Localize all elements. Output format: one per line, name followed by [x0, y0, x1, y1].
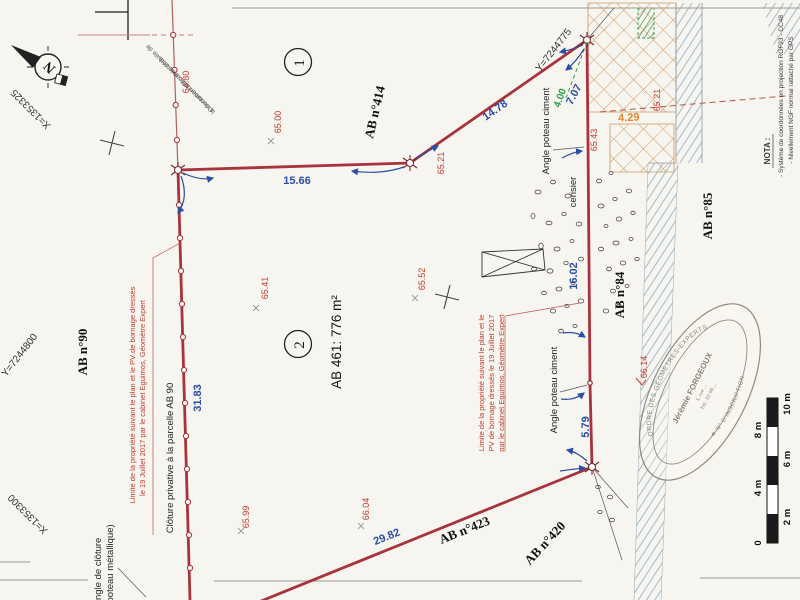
measurement-right-lower: 5.79	[580, 416, 592, 437]
green-hatch-box	[638, 8, 654, 38]
annotation-angle-cloture-1: Angle de clôture	[93, 538, 104, 600]
nota-title: NOTA :	[763, 138, 772, 165]
boundary-note-center-line1: Limite de la propriété suivant le plan e…	[477, 315, 486, 451]
boundary-note-left-line1: Limite de la propriété suivant le plan e…	[128, 286, 137, 503]
nota-line2: - Nivellement NGF normal rattaché par GP…	[788, 36, 795, 164]
elevation-label: 65.52	[417, 268, 427, 291]
boundary-note-left-line2: le 19 Juillet 2017 par le cabinet Eguimo…	[138, 299, 147, 496]
elevation-label: 65.00	[273, 111, 283, 134]
elevation-label: 65.21	[436, 152, 446, 175]
scale-label: 6 m	[782, 451, 793, 467]
boundary-note-center-line3: par le cabinet Eguimos, Géomètre Expert	[497, 313, 506, 451]
elevation-label: 65.21	[652, 89, 662, 112]
elevation-label: 65.99	[241, 506, 251, 529]
boundary-note-center-line2: PV de bornage dressés le 19 Juillet 2017	[487, 315, 496, 452]
elevation-label: 66.14	[639, 356, 649, 379]
parcel-area-label: AB 461: 776 m²	[329, 295, 344, 389]
measurement-left: 31.83	[192, 384, 204, 412]
scale-label: 2 m	[782, 509, 793, 525]
annotation-angle-poteau-bottom: Angle poteau ciment	[549, 346, 560, 433]
zone-number-1: 1	[292, 59, 308, 67]
parcel-label-90: AB n°90	[75, 329, 90, 376]
measurement-right-middle: 16.02	[568, 262, 580, 290]
parcel-label-85: AB n°85	[700, 192, 715, 239]
measurement-orange: 4.29	[618, 111, 640, 124]
elevation-label: 64.80	[181, 71, 191, 94]
elevation-label: 65.43	[589, 129, 599, 152]
scale-label: 4 m	[753, 480, 764, 496]
annotation-cerisier: cerisier	[568, 177, 579, 208]
survey-plan-canvas: 1 2 N Orientation indicative déduite de …	[0, 0, 800, 600]
parcel-label-84: AB n°84	[612, 271, 627, 318]
annotation-angle-cloture-2: (poteau métallique)	[105, 524, 116, 600]
nota-line1: - Système de coordonnées en projection R…	[778, 15, 785, 177]
measurement-top: 15.66	[283, 175, 311, 187]
scale-label: 0	[753, 540, 764, 545]
elevation-label: 65.41	[260, 277, 270, 300]
scanned-survey-plan: 1 2 N Orientation indicative déduite de …	[0, 0, 800, 600]
annotation-angle-poteau-top: Angle poteau ciment	[541, 87, 552, 174]
scale-label: 8 m	[753, 422, 764, 438]
annotation-cloture-ab90: Clôture privative à la parcelle AB 90	[165, 383, 176, 534]
elevation-label: 66.04	[361, 498, 371, 521]
scale-label: 10 m	[782, 393, 793, 415]
zone-number-2: 2	[292, 341, 308, 349]
